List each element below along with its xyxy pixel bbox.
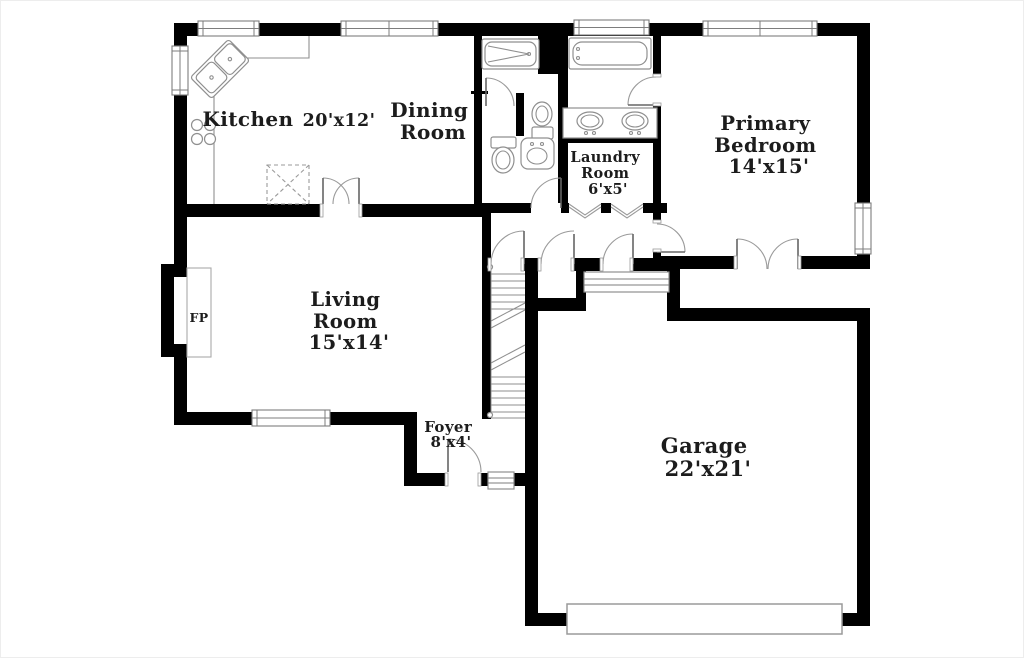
primary-bath-door-icon <box>628 77 656 105</box>
kitchen-window-left-icon <box>172 46 188 95</box>
windows <box>172 20 871 426</box>
toilet-icon <box>532 102 553 139</box>
primary-bedroom-label: Primary Bedroom 14'x15' <box>714 112 823 178</box>
bedroom-window-top-icon <box>703 21 817 36</box>
hall-closet-door-icon <box>541 231 574 264</box>
staircase <box>488 264 526 418</box>
hall-bathtub-icon <box>482 39 539 69</box>
pedestal-sink-icon <box>521 138 554 169</box>
toilet-icon <box>491 137 516 173</box>
bedroom-window-right-icon <box>855 203 871 254</box>
bath-connecting-door-icon <box>486 78 514 106</box>
front-stoop-icon <box>488 472 514 489</box>
kitchen-dims: 20'x12' <box>303 111 376 131</box>
double-vanity-icon <box>563 108 657 138</box>
dining-window-icon <box>341 21 438 36</box>
dining-room-label: Dining Room <box>390 98 475 144</box>
garage-door-icon <box>567 604 842 634</box>
kitchen-window-top-icon <box>198 21 259 36</box>
foyer-label: Foyer 8'x4' <box>424 418 478 451</box>
floor-plan-page: Kitchen 20'x12' Dining Room Laundry Room… <box>0 0 1024 658</box>
garage-label: Garage 22'x21' <box>661 433 755 481</box>
pantry-dashed-box-icon <box>267 165 309 204</box>
living-room-window-icon <box>252 410 330 426</box>
living-room-label: Living Room 15'x14' <box>309 288 390 354</box>
laundry-room-label: Laundry Room 6'x5' <box>570 149 645 198</box>
bath-window-icon <box>574 20 649 35</box>
hall-bath-door-icon <box>531 178 561 208</box>
floor-plan-drawing: Kitchen 20'x12' Dining Room Laundry Room… <box>1 1 1024 658</box>
kitchen-corner-sink-icon <box>190 39 249 98</box>
fireplace-label: FP <box>189 310 208 325</box>
kitchen-double-doors-icon <box>323 178 359 204</box>
kitchen-label: Kitchen <box>202 107 293 131</box>
bedroom-door-icon <box>657 224 685 252</box>
garage-hall-door-icon <box>603 234 633 264</box>
garage-entry-steps-icon <box>584 272 669 292</box>
basement-stair-door-icon <box>491 231 524 264</box>
closet-double-doors-icon <box>737 239 798 269</box>
primary-bathtub-icon <box>569 38 651 69</box>
